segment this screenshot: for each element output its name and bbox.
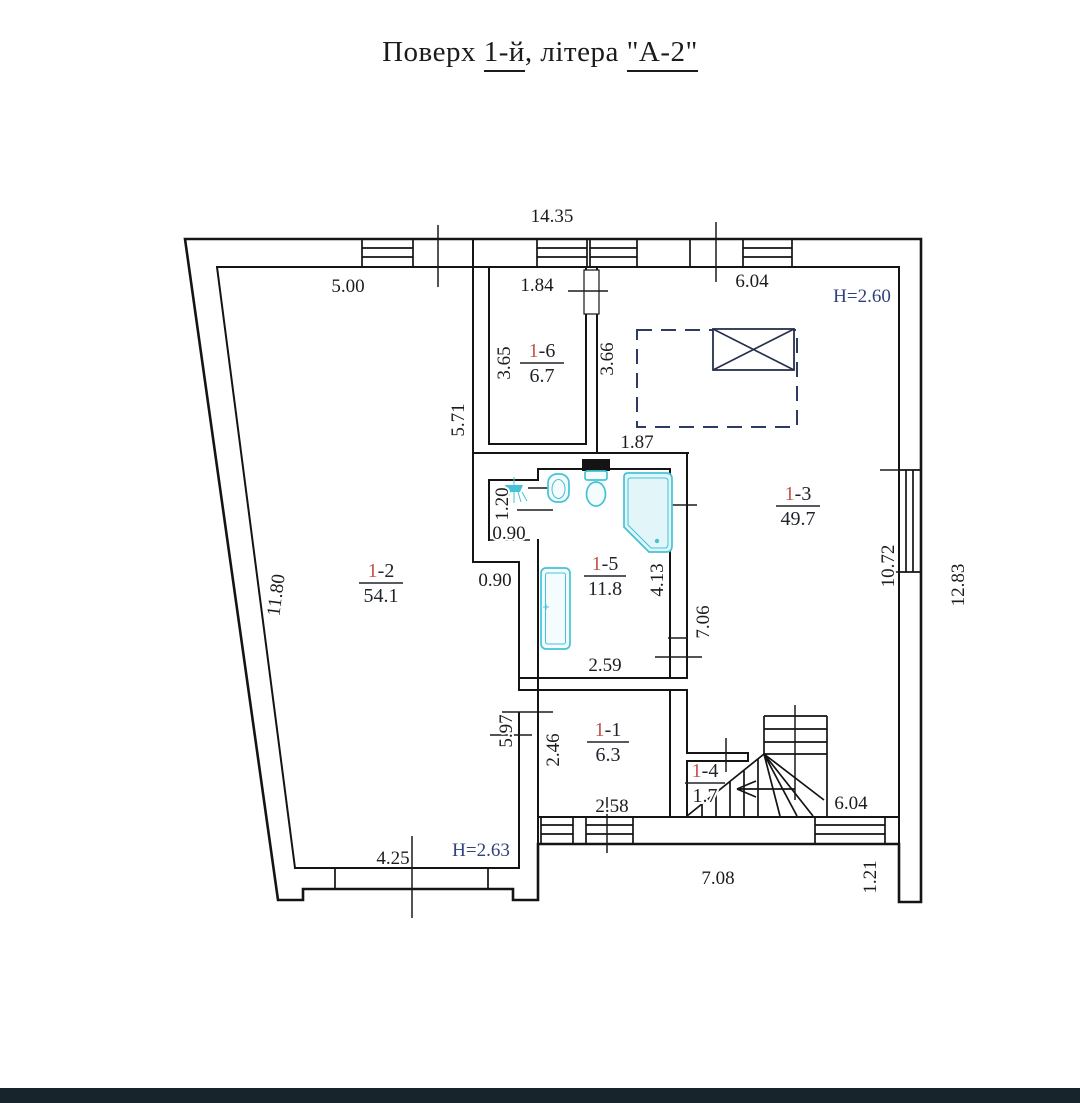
dim-1-87: 1.87 xyxy=(620,432,653,453)
drain-icon xyxy=(655,539,659,543)
bidet-icon xyxy=(548,474,569,502)
room-number: -3 xyxy=(795,483,812,505)
door-threshold-marker xyxy=(582,459,610,471)
dim-4-25: 4.25 xyxy=(376,848,409,869)
room-label-1-4: 1-4 1.7 xyxy=(685,760,725,807)
window xyxy=(335,239,921,889)
bathtub-icon xyxy=(541,568,570,649)
dim-4-13: 4.13 xyxy=(647,563,668,596)
room-label-1-6: 1-6 6.7 xyxy=(520,340,564,387)
room-area: 49.7 xyxy=(781,508,816,530)
room-label-1-3: 1-3 49.7 xyxy=(776,483,820,530)
ceiling-height-left: H=2.63 xyxy=(452,840,510,861)
dim-11-80: 11.80 xyxy=(263,573,289,617)
bathroom-fixtures xyxy=(501,471,672,649)
room-number-accent: 1 xyxy=(595,719,605,741)
room-label-1-1: 1-1 6.3 xyxy=(587,719,629,766)
dim-top-total: 14.35 xyxy=(531,206,574,227)
room-number: -5 xyxy=(602,553,619,575)
dim-2-46: 2.46 xyxy=(543,733,564,766)
dim-6-04-top: 6.04 xyxy=(735,271,769,292)
corner-bath-icon xyxy=(624,473,672,552)
dim-5-00: 5.00 xyxy=(331,276,364,297)
dim-5-71: 5.71 xyxy=(448,403,469,436)
svg-text:1-4: 1-4 xyxy=(692,760,719,782)
dim-3-65: 3.65 xyxy=(494,346,515,379)
svg-text:1-1: 1-1 xyxy=(595,719,622,741)
room-number-accent: 1 xyxy=(692,760,702,782)
dim-1-84: 1.84 xyxy=(520,275,554,296)
room-number-accent: 1 xyxy=(592,553,602,575)
dim-6-04-bottom: 6.04 xyxy=(834,793,868,814)
footer-bar xyxy=(0,1088,1080,1103)
toilet-icon xyxy=(585,471,607,506)
floor-plan: 14.35 5.00 1.84 6.04 H=2.60 1.87 0.90 0.… xyxy=(0,0,1080,1103)
room-number-accent: 1 xyxy=(785,483,795,505)
room-area: 11.8 xyxy=(588,578,622,600)
inner-walls xyxy=(217,239,899,868)
svg-text:1-5: 1-5 xyxy=(592,553,619,575)
dim-1-21: 1.21 xyxy=(860,860,881,893)
wall-opening xyxy=(584,270,599,314)
room-number: -4 xyxy=(702,760,719,782)
room-area: 54.1 xyxy=(364,585,399,607)
dim-3-66: 3.66 xyxy=(597,342,618,375)
svg-text:1-3: 1-3 xyxy=(785,483,812,505)
dim-1-20: 1.20 xyxy=(492,487,513,520)
dim-2-59: 2.59 xyxy=(588,655,621,676)
dim-5-97: 5.97 xyxy=(496,714,517,747)
room-area: 6.3 xyxy=(596,744,621,766)
room-number-accent: 1 xyxy=(368,560,378,582)
room-number: -2 xyxy=(378,560,395,582)
dim-0-90-room: 0.90 xyxy=(478,570,511,591)
ceiling-height-right: H=2.60 xyxy=(833,286,891,307)
room-label-1-5: 1-5 11.8 xyxy=(584,553,626,600)
svg-text:1-6: 1-6 xyxy=(529,340,556,362)
room-number-accent: 1 xyxy=(529,340,539,362)
dim-2-58: 2.58 xyxy=(595,796,628,817)
dim-7-06: 7.06 xyxy=(693,605,714,638)
dim-12-83: 12.83 xyxy=(948,564,969,607)
room-number: -1 xyxy=(605,719,622,741)
dim-7-08: 7.08 xyxy=(701,868,734,889)
room-area: 6.7 xyxy=(530,365,555,387)
svg-text:1-2: 1-2 xyxy=(368,560,395,582)
room-label-1-2: 1-2 54.1 xyxy=(359,560,403,607)
dim-10-72: 10.72 xyxy=(878,545,899,588)
room-number: -6 xyxy=(539,340,556,362)
dim-0-90-niche: 0.90 xyxy=(492,523,525,544)
crossed-box-icon xyxy=(713,329,794,370)
room-area: 1.7 xyxy=(693,785,718,807)
